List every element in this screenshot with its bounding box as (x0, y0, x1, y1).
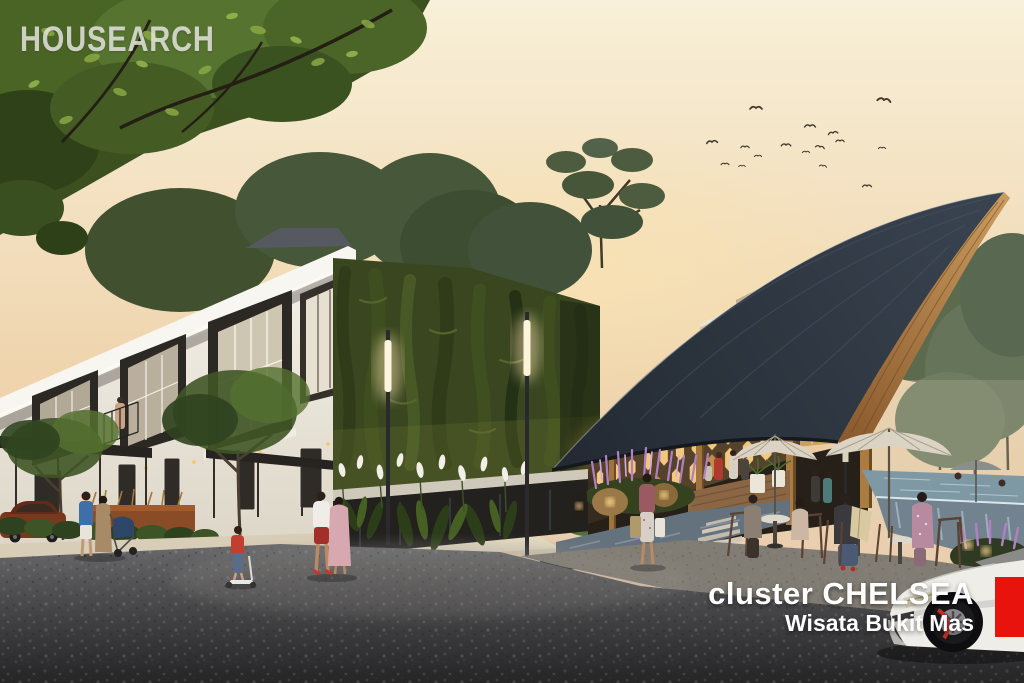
brand-block (995, 577, 1024, 637)
swimmer-head (999, 480, 1006, 487)
architectural-render: HOUSEARCH cluster CHELSEA Wisata Bukit M… (0, 0, 1024, 683)
swimmer-head (955, 473, 962, 480)
cluster-name: cluster CHELSEA (708, 578, 974, 610)
shopping-bag (655, 518, 665, 537)
housearch-watermark: HOUSEARCH (20, 20, 215, 60)
development-name: Wisata Bukit Mas (708, 612, 974, 635)
shopping-bag (630, 516, 641, 538)
project-caption: cluster CHELSEA Wisata Bukit Mas (708, 578, 974, 635)
vertical-garden-wall (333, 258, 600, 556)
